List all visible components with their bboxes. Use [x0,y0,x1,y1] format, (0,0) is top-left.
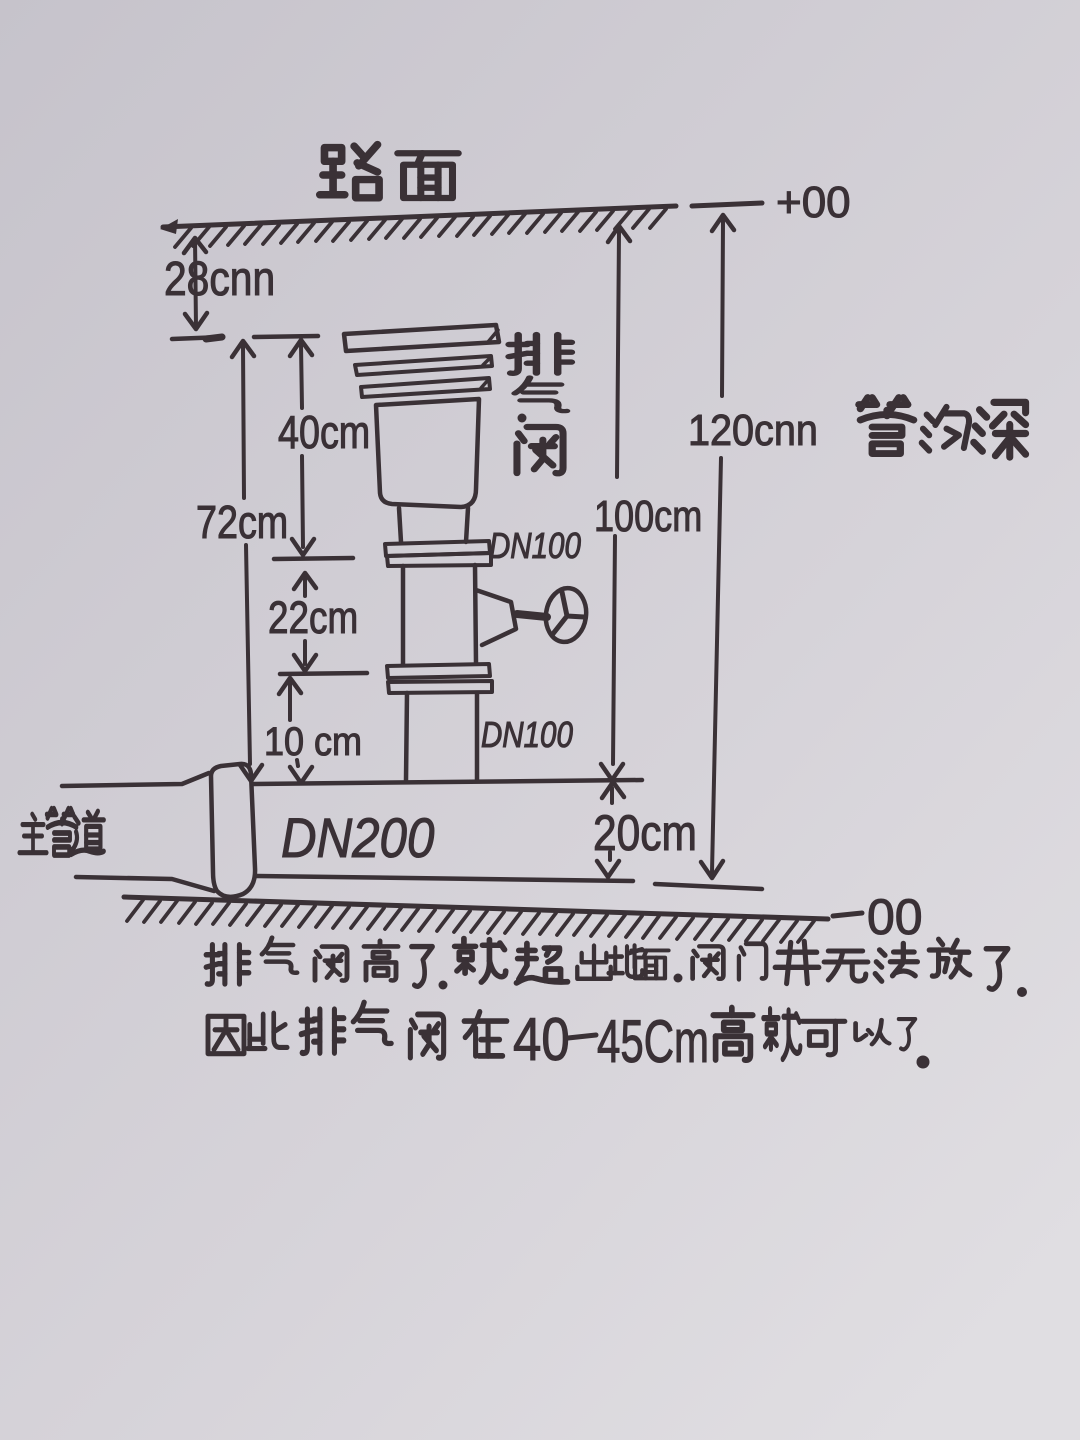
svg-text:+00: +00 [776,178,851,227]
svg-text:28cnn: 28cnn [164,253,275,306]
svg-text:120cnn: 120cnn [688,405,818,454]
svg-text:DN100: DN100 [489,525,581,565]
svg-text:72cm: 72cm [196,496,288,547]
svg-text:40cm: 40cm [278,406,370,457]
svg-text:20cm: 20cm [593,805,697,861]
svg-text:40: 40 [513,1006,570,1073]
svg-text:DN100: DN100 [481,714,573,754]
svg-text:100cm: 100cm [594,492,702,541]
svg-text:00: 00 [867,889,923,945]
svg-text:DN200: DN200 [281,807,434,870]
svg-text:10 cm: 10 cm [264,720,362,764]
svg-text:45Cm: 45Cm [597,1008,709,1075]
svg-text:22cm: 22cm [268,593,358,643]
